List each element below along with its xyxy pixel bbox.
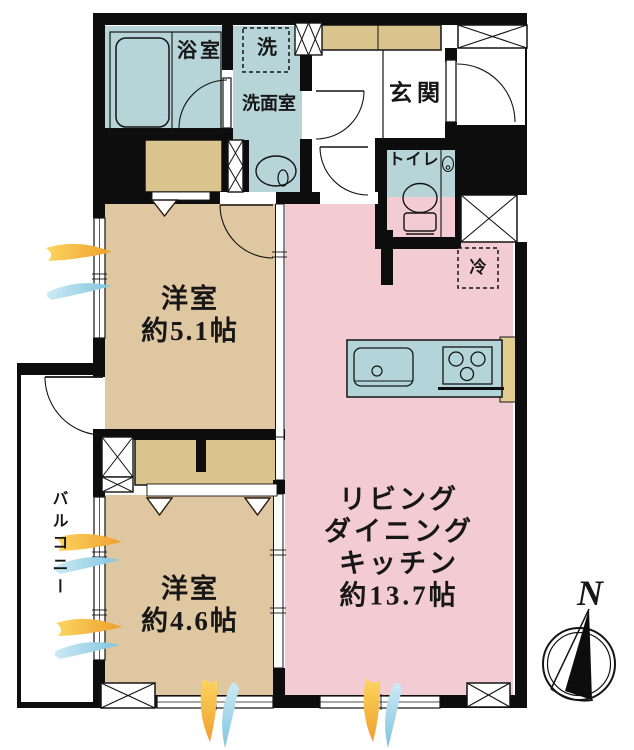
wall-bath-washroom-upper [222,13,233,70]
porch-edge-line [525,48,527,125]
stove-grill-line [438,387,504,390]
bedroom1-name: 洋室 [141,284,239,316]
shaft-box-bottom-right [467,683,510,707]
shaft-strip-washroom [228,140,243,192]
wall-right [515,242,527,707]
window-ldk-bottom [320,694,440,710]
bedroom2-name: 洋室 [141,574,239,606]
compass-north-label: N [577,572,603,614]
bath-label: 浴室 [177,40,223,64]
wind-arrow-yellow-5 [364,678,380,742]
ldk-label: リビング ダイニング キッチン 約13.7帖 [324,484,474,611]
wall-balcony-top [17,363,105,375]
wall-block-left [93,140,145,192]
shaft-box-bottom-left [101,683,155,708]
ldk-size: 約13.7帖 [324,580,474,612]
wall-kitchen-stub [381,230,393,285]
wall-washroom-hall-upper [300,50,312,91]
bedroom2-label: 洋室 約4.6帖 [141,574,239,638]
wall-closet-divider [196,437,206,472]
wall-balcony-bottom [17,702,105,708]
laundry-label: 洗 [257,37,277,61]
partition-closet-ldk [276,437,285,480]
balcony-label: バルコニー [48,490,67,600]
bedroom1-size: 約5.1帖 [141,316,239,348]
bedroom2-size: 約4.6帖 [141,606,239,638]
wall-sliver-1 [222,140,228,192]
shaft-box-top-right [458,25,527,48]
floor-plan-page: 浴室 洗 洗面室 玄関 トイレ 冷 洋室 約5.1帖 洋室 約4.6帖 リビング… [0,0,634,750]
door-entrance [446,60,515,122]
entrance-label: 玄関 [389,79,445,106]
wall-toilet-right [455,148,461,249]
closet2-opening [147,484,277,496]
ldk-line1: リビング [324,484,474,516]
bedroom1-label: 洋室 約5.1帖 [141,284,239,348]
ldk-line2: ダイニング [324,516,474,548]
closet-bedroom1 [145,140,222,192]
wall-block-right [457,125,527,195]
opening-hall-ldk [320,192,378,204]
shaft-box-closet-side [102,437,133,492]
shaft-box-top-narrow [295,23,322,55]
window-bedroom1-left [92,218,107,338]
wall-bath-bottom [93,128,222,140]
washroom-label: 洗面室 [242,93,296,114]
shaft-box-entry-side [461,195,517,242]
closet1-opening [152,192,210,200]
refrigerator-label: 冷 [470,258,487,278]
wall-entrance-right-lower [445,122,457,138]
window-bedroom2-left [92,497,107,660]
hallway-floor [312,50,383,192]
kitchen-counter [347,340,504,397]
wall-toilet-top [375,138,457,150]
wall-sliver-2 [243,140,249,192]
shoe-cabinet [313,25,441,50]
wall-balcony-left [17,363,21,708]
ldk-line3: キッチン [324,548,474,580]
compass-needle [565,609,592,700]
compass-icon [543,609,615,701]
wall-washroom-hall-lower [300,139,312,192]
wall-partition-block-b [273,668,285,707]
floor-plan-drawing [0,0,634,750]
toilet-label: トイレ [388,152,439,171]
opening-bedroom1 [220,192,276,204]
wind-arrow-yellow-4 [201,678,217,742]
